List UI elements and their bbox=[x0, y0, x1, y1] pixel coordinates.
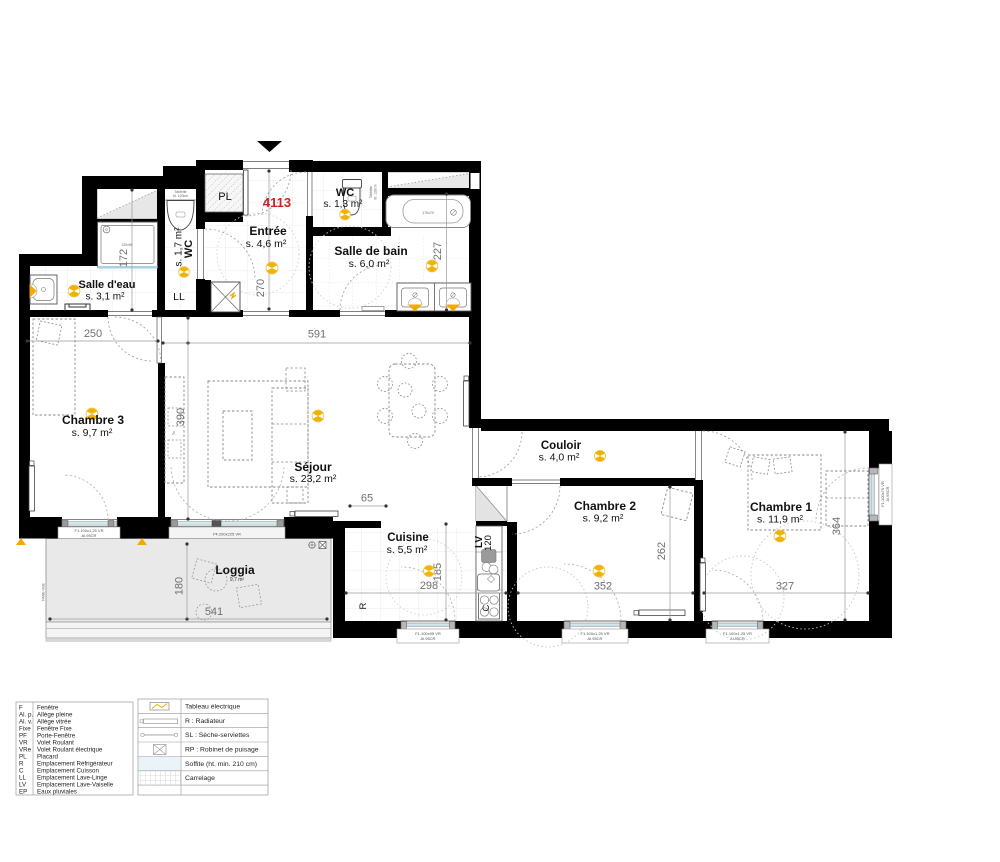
svg-text:262: 262 bbox=[656, 542, 668, 560]
svg-text:227: 227 bbox=[432, 242, 444, 260]
svg-text:s. 9,7 m²: s. 9,7 m² bbox=[72, 427, 113, 439]
svg-text:LL: LL bbox=[173, 291, 185, 303]
svg-text:Volet Roulant: Volet Roulant bbox=[37, 740, 74, 747]
svg-text:F: F bbox=[19, 705, 23, 712]
svg-text:C: C bbox=[19, 768, 24, 775]
svg-text:270: 270 bbox=[255, 279, 267, 297]
svg-text:Allège pleine: Allège pleine bbox=[37, 712, 73, 719]
svg-text:Fenêtre: Fenêtre bbox=[37, 705, 59, 712]
svg-text:170x70: 170x70 bbox=[422, 211, 434, 215]
svg-text:Cuisine: Cuisine bbox=[387, 532, 429, 544]
svg-text:541: 541 bbox=[205, 606, 223, 618]
svg-text:Couloir: Couloir bbox=[541, 440, 582, 452]
svg-text:Emplacement Lave-Linge: Emplacement Lave-Linge bbox=[37, 775, 108, 782]
svg-text:Fenêtre Fixe: Fenêtre Fixe bbox=[37, 726, 72, 733]
svg-text:WC: WC bbox=[336, 187, 354, 199]
svg-text:RP : Robinet de puisage: RP : Robinet de puisage bbox=[185, 747, 259, 754]
svg-text:Soffite (ht. min. 210 cm): Soffite (ht. min. 210 cm) bbox=[185, 761, 257, 768]
svg-text:Tablette: Tablette bbox=[369, 186, 373, 198]
svg-text:s. 9,2 m²: s. 9,2 m² bbox=[583, 513, 624, 525]
svg-text:s. 5,5 m²: s. 5,5 m² bbox=[387, 544, 428, 556]
svg-text:120x90: 120x90 bbox=[121, 243, 133, 247]
svg-text:s. 6,0 m²: s. 6,0 m² bbox=[349, 258, 390, 270]
svg-text:Chambre 1: Chambre 1 bbox=[750, 500, 812, 514]
svg-text:Al.95CR: Al.95CR bbox=[82, 533, 97, 538]
svg-text:390: 390 bbox=[175, 408, 187, 426]
svg-text:Entrée: Entrée bbox=[249, 224, 287, 238]
svg-text:Al. v.: Al. v. bbox=[19, 719, 33, 726]
svg-text:R: R bbox=[358, 602, 369, 609]
svg-text:Al.95CR: Al.95CR bbox=[421, 636, 436, 641]
svg-text:Loggia: Loggia bbox=[215, 563, 255, 577]
svg-text:352: 352 bbox=[594, 581, 612, 593]
svg-text:ht. 120cm: ht. 120cm bbox=[374, 184, 378, 199]
svg-text:9,7 m²: 9,7 m² bbox=[230, 577, 245, 583]
svg-text:120: 120 bbox=[483, 535, 494, 551]
svg-text:Emplacement Réfrigérateur: Emplacement Réfrigérateur bbox=[37, 761, 113, 768]
svg-text:R : Radiateur: R : Radiateur bbox=[185, 718, 226, 725]
svg-text:VRe: VRe bbox=[19, 747, 32, 754]
svg-text:Tv: Tv bbox=[172, 431, 176, 435]
svg-text:Chambre 3: Chambre 3 bbox=[62, 413, 124, 427]
svg-text:Salle d'eau: Salle d'eau bbox=[78, 279, 135, 291]
svg-text:250: 250 bbox=[84, 328, 102, 340]
svg-text:LL: LL bbox=[19, 775, 26, 782]
svg-text:PF.200x225 VR: PF.200x225 VR bbox=[213, 532, 241, 537]
svg-text:Porte-Fenêtre: Porte-Fenêtre bbox=[37, 733, 76, 740]
svg-text:65: 65 bbox=[361, 493, 373, 505]
svg-text:LV: LV bbox=[19, 782, 27, 789]
svg-text:Emplacement Lave-Vaiselle: Emplacement Lave-Vaiselle bbox=[37, 782, 114, 789]
svg-text:ht. 120cm: ht. 120cm bbox=[173, 194, 188, 198]
svg-text:EP: EP bbox=[19, 789, 27, 796]
svg-text:VR: VR bbox=[19, 740, 28, 747]
svg-text:Tableau électrique: Tableau électrique bbox=[185, 704, 240, 711]
svg-text:s. 3,1 m²: s. 3,1 m² bbox=[86, 292, 126, 303]
svg-text:s. 23,2 m²: s. 23,2 m² bbox=[290, 473, 337, 485]
svg-text:R: R bbox=[19, 761, 24, 768]
svg-text:PARE-VUE: PARE-VUE bbox=[42, 583, 46, 601]
svg-text:364: 364 bbox=[831, 517, 843, 535]
svg-text:Volet Roulant électrique: Volet Roulant électrique bbox=[37, 747, 103, 754]
svg-text:SL : Sèche-serviettes: SL : Sèche-serviettes bbox=[185, 732, 250, 739]
svg-text:180: 180 bbox=[174, 577, 186, 595]
svg-text:PF: PF bbox=[19, 733, 27, 740]
svg-text:591: 591 bbox=[308, 329, 326, 341]
svg-text:Emplacement Cuisson: Emplacement Cuisson bbox=[37, 768, 99, 775]
svg-text:4113: 4113 bbox=[263, 195, 291, 210]
svg-text:Fixe: Fixe bbox=[19, 726, 31, 733]
svg-text:Séjour: Séjour bbox=[294, 460, 332, 474]
svg-text:s. 1,3 m²: s. 1,3 m² bbox=[324, 199, 364, 210]
svg-text:s. 11,9 m²: s. 11,9 m² bbox=[757, 514, 803, 526]
svg-text:s. 4,6 m²: s. 4,6 m² bbox=[246, 238, 287, 250]
svg-text:s. 1,7 m²: s. 1,7 m² bbox=[174, 227, 185, 267]
svg-text:Carrelage: Carrelage bbox=[185, 775, 215, 782]
svg-text:Al. p.: Al. p. bbox=[19, 712, 33, 719]
svg-text:327: 327 bbox=[776, 581, 794, 593]
svg-text:Allège vitrée: Allège vitrée bbox=[37, 719, 72, 726]
svg-text:Salle de bain: Salle de bain bbox=[334, 244, 407, 258]
svg-text:Chambre 2: Chambre 2 bbox=[574, 499, 636, 513]
svg-text:s. 4,0 m²: s. 4,0 m² bbox=[539, 452, 580, 464]
svg-text:172: 172 bbox=[118, 249, 130, 267]
svg-text:C: C bbox=[481, 604, 492, 611]
svg-text:Placard: Placard bbox=[37, 754, 59, 761]
svg-text:WC: WC bbox=[183, 240, 195, 258]
svg-text:Al.95CR: Al.95CR bbox=[588, 636, 603, 641]
svg-text:Al.95CR: Al.95CR bbox=[885, 486, 890, 501]
svg-text:PL: PL bbox=[218, 191, 231, 203]
svg-text:Eaux pluviales: Eaux pluviales bbox=[37, 789, 77, 796]
svg-text:PL: PL bbox=[19, 754, 27, 761]
